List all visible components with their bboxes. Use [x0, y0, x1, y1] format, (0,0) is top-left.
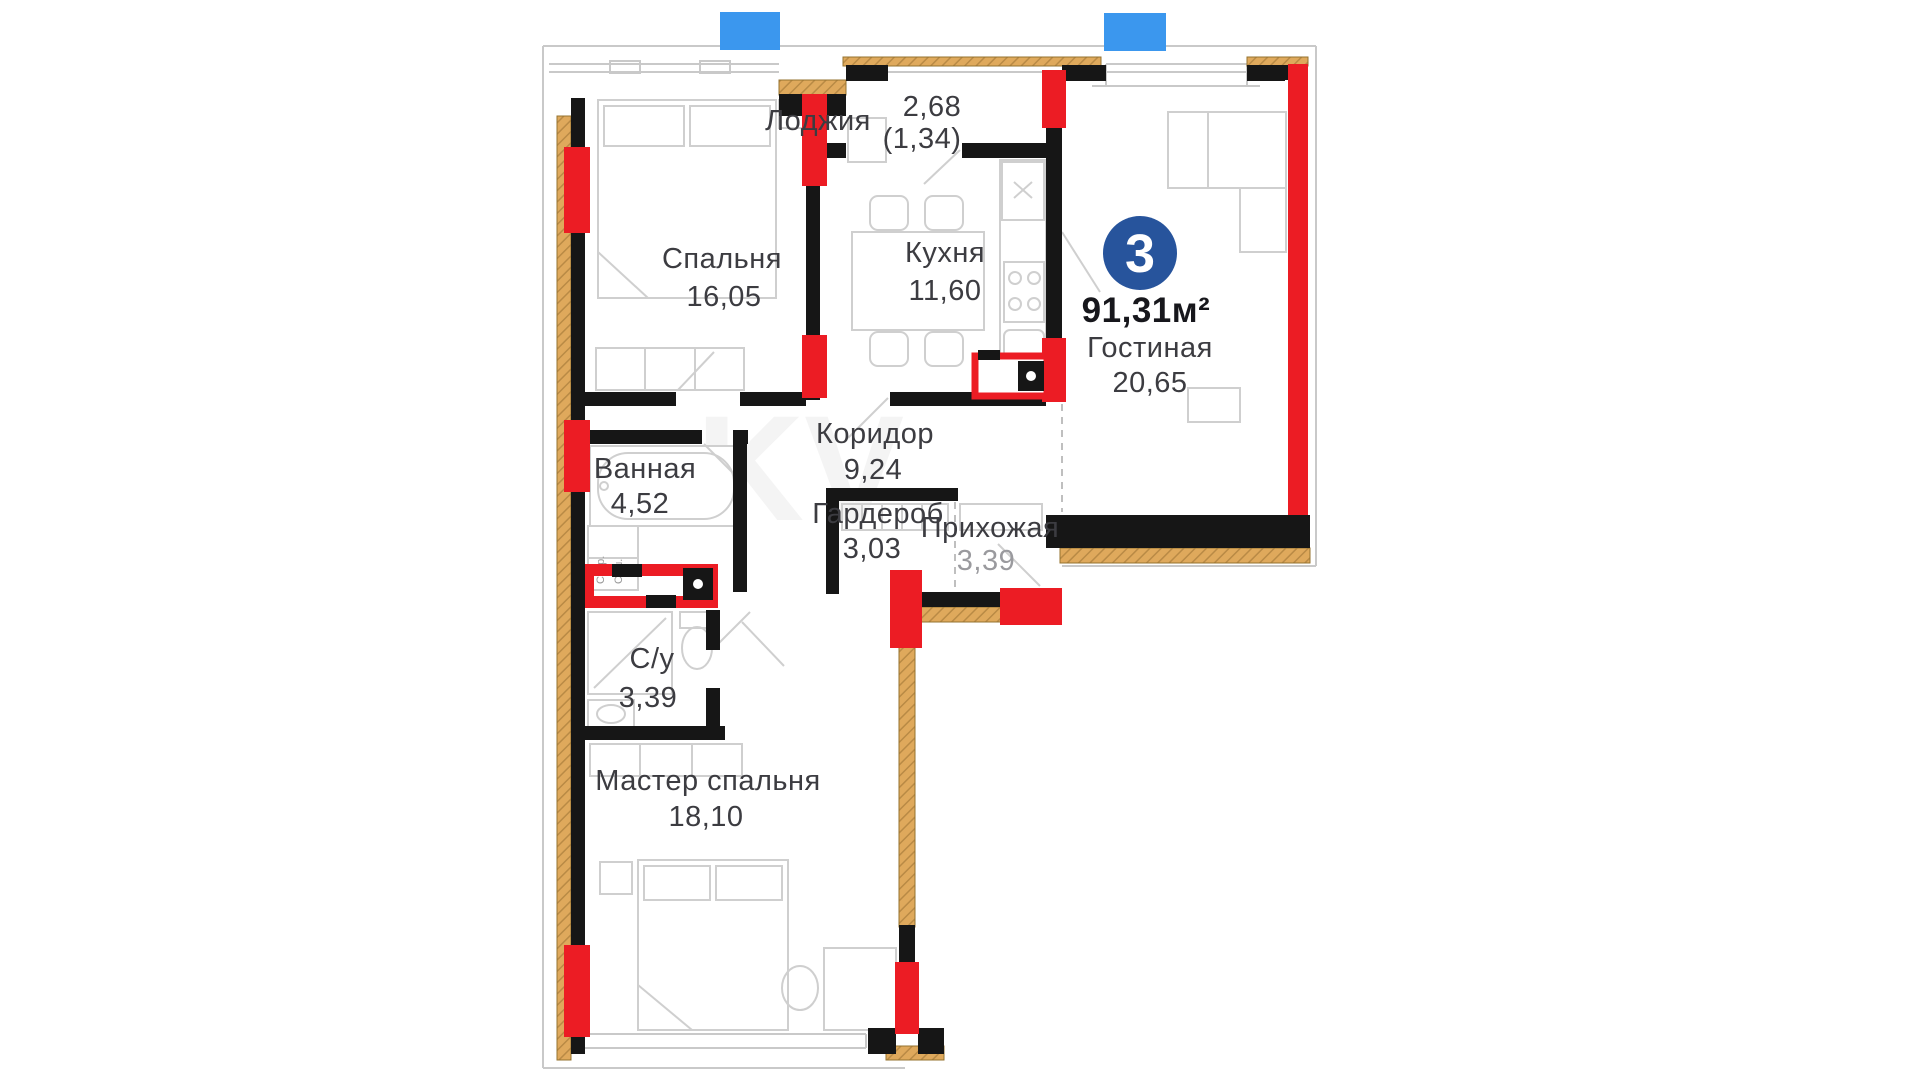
room-label: Гостиная — [1087, 332, 1213, 364]
desk-icon — [782, 948, 896, 1030]
washer-dryer-icon: Стир. Суш. — [588, 526, 638, 590]
room-area: 3,39 — [957, 545, 1015, 577]
room-area: 11,60 — [909, 275, 982, 307]
room-area: 20,65 — [1112, 367, 1187, 399]
master-bed-icon — [600, 860, 788, 1030]
room-area: 4,52 — [611, 488, 669, 520]
room-count: 3 — [1125, 224, 1155, 284]
room-area: 9,24 — [844, 454, 902, 486]
loggia-area-half: (1,34) — [883, 123, 962, 155]
window-marker-icon — [720, 12, 780, 50]
room-area: 16,05 — [686, 281, 761, 313]
room-label: Мастер спальня — [595, 765, 820, 797]
room-area: 3,39 — [619, 682, 677, 714]
apartment-badge: 3 91,31м² — [1082, 216, 1211, 330]
loggia-area: 2,68 — [903, 91, 961, 123]
window-marker-icon — [1104, 13, 1166, 51]
room-area: 3,03 — [843, 533, 901, 565]
kitchen-boiler — [975, 350, 1047, 396]
room-label: Спальня — [662, 243, 782, 275]
loggia-label: Лоджия — [765, 105, 871, 137]
service-shaft — [585, 564, 718, 608]
floor-plan-canvas: KV — [0, 0, 1920, 1080]
room-label: Кухня — [905, 237, 985, 269]
room-label: С/у — [630, 643, 675, 675]
floor-plan-page: KV — [0, 0, 1920, 1080]
room-area: 18,10 — [668, 801, 743, 833]
total-area: 91,31м² — [1082, 291, 1211, 330]
room-label: Коридор — [816, 418, 934, 450]
room-label: Ванная — [594, 453, 696, 485]
room-label: Прихожая — [921, 512, 1059, 544]
